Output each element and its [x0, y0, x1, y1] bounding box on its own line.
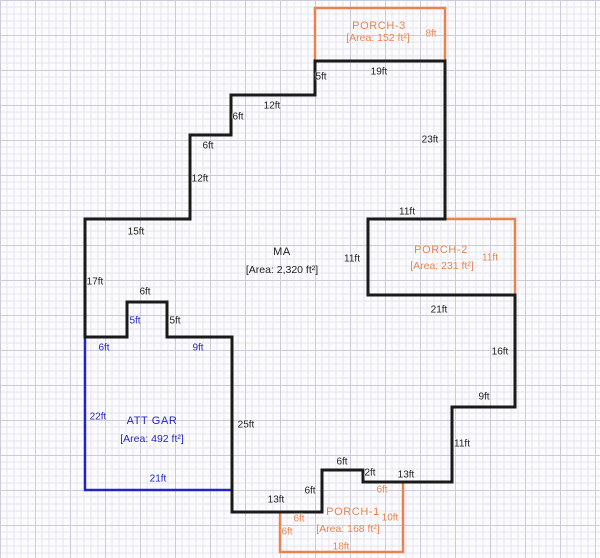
- dimension-label: 5ft: [169, 316, 180, 327]
- dimension-label: 6ft: [304, 486, 315, 497]
- porch-2-name-label: PORCH-2: [414, 244, 468, 256]
- dimension-label: 10ft: [382, 513, 399, 524]
- dimension-label: 13ft: [398, 470, 415, 481]
- dimension-label: 22ft: [90, 412, 107, 423]
- dimension-label: 6ft: [336, 457, 347, 468]
- dimension-label: 11ft: [482, 253, 498, 264]
- ma-name-label: MA: [273, 246, 291, 258]
- dimension-label: 8ft: [425, 29, 436, 40]
- dimension-label: 21ft: [431, 305, 448, 316]
- dimension-label: 6ft: [232, 112, 243, 123]
- dimension-label: 6ft: [293, 514, 304, 525]
- dimension-label: 16ft: [492, 347, 509, 358]
- dimension-label: 9ft: [478, 392, 489, 403]
- dimension-label: 12ft: [264, 101, 281, 112]
- dimension-label: 6ft: [281, 527, 292, 538]
- dimension-label: 6ft: [98, 343, 109, 354]
- dimension-label: 5ft: [129, 316, 140, 327]
- dimension-label: 6ft: [376, 485, 387, 496]
- dimension-label: 15ft: [128, 227, 145, 238]
- att-gar-area-label: [Area: 492 ft²]: [120, 433, 184, 445]
- dimension-label: 11ft: [454, 439, 470, 450]
- dimension-label: 18ft: [333, 542, 350, 553]
- dimension-label: 25ft: [238, 420, 255, 431]
- att-gar-name-label: ATT GAR: [127, 415, 178, 427]
- dimension-label: 6ft: [202, 141, 213, 152]
- dimension-label: 2ft: [364, 468, 375, 479]
- dimension-label: 21ft: [150, 474, 167, 485]
- dimension-label: 12ft: [192, 174, 209, 185]
- porch-1-name-label: PORCH-1: [326, 506, 380, 518]
- porch-2-area-label: [Area: 231 ft²]: [410, 260, 474, 272]
- dimension-label: 9ft: [192, 343, 203, 354]
- porch-1-area-label: [Area: 168 ft²]: [316, 523, 380, 535]
- dimension-label: 13ft: [268, 495, 285, 506]
- dimension-label: 11ft: [399, 207, 415, 218]
- dimension-label: 19ft: [371, 67, 388, 78]
- dimension-label: 5ft: [315, 72, 326, 83]
- dimension-label: 6ft: [139, 287, 150, 298]
- dimension-label: 17ft: [87, 277, 104, 288]
- porch-3-area-label: [Area: 152 ft²]: [346, 32, 410, 44]
- floor-plan-canvas: 5ft19ft23ft12ft6ft6ft12ft15ft17ft11ft11f…: [0, 0, 600, 558]
- dimension-label: 23ft: [422, 135, 439, 146]
- labels-layer: 5ft19ft23ft12ft6ft6ft12ft15ft17ft11ft11f…: [0, 0, 600, 558]
- porch-3-name-label: PORCH-3: [352, 20, 406, 32]
- ma-area-label: [Area: 2,320 ft²]: [246, 264, 318, 276]
- dimension-label: 11ft: [344, 254, 360, 265]
